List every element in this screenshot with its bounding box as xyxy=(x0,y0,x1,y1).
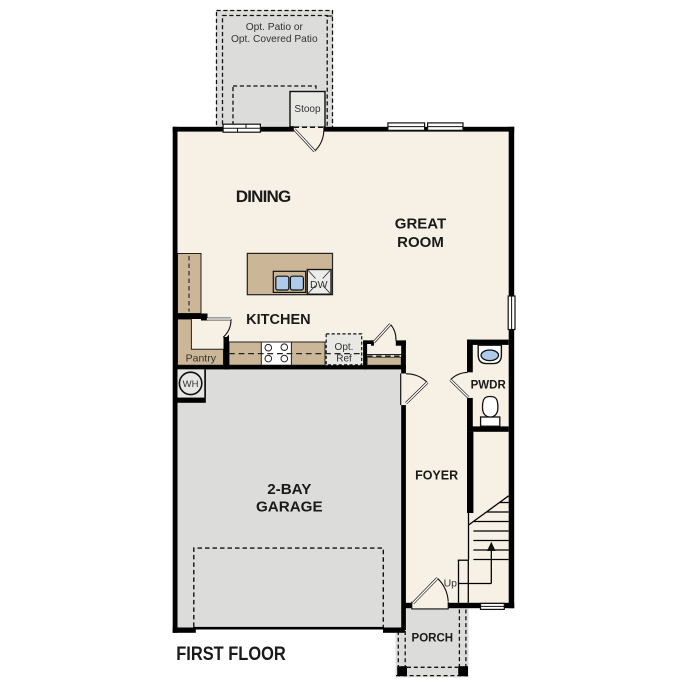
svg-text:Opt. Covered Patio: Opt. Covered Patio xyxy=(231,34,318,45)
svg-text:ROOM: ROOM xyxy=(397,234,444,251)
svg-text:Opt.: Opt. xyxy=(335,342,354,353)
svg-text:FIRST FLOOR: FIRST FLOOR xyxy=(176,643,286,665)
svg-text:DINING: DINING xyxy=(236,187,291,206)
svg-text:GARAGE: GARAGE xyxy=(256,499,323,516)
svg-text:GREAT: GREAT xyxy=(395,216,446,233)
svg-text:DW: DW xyxy=(310,279,328,291)
svg-text:WH: WH xyxy=(183,379,199,390)
svg-text:FOYER: FOYER xyxy=(415,468,458,482)
svg-text:Opt. Patio or: Opt. Patio or xyxy=(246,22,304,33)
svg-text:PWDR: PWDR xyxy=(471,379,507,391)
svg-text:Ref: Ref xyxy=(336,353,352,364)
svg-text:KITCHEN: KITCHEN xyxy=(246,312,310,328)
svg-text:Up: Up xyxy=(444,578,458,590)
svg-text:Pantry: Pantry xyxy=(186,353,217,365)
svg-text:PORCH: PORCH xyxy=(412,633,454,645)
svg-text:2-BAY: 2-BAY xyxy=(267,481,311,498)
svg-text:Stoop: Stoop xyxy=(294,104,321,115)
